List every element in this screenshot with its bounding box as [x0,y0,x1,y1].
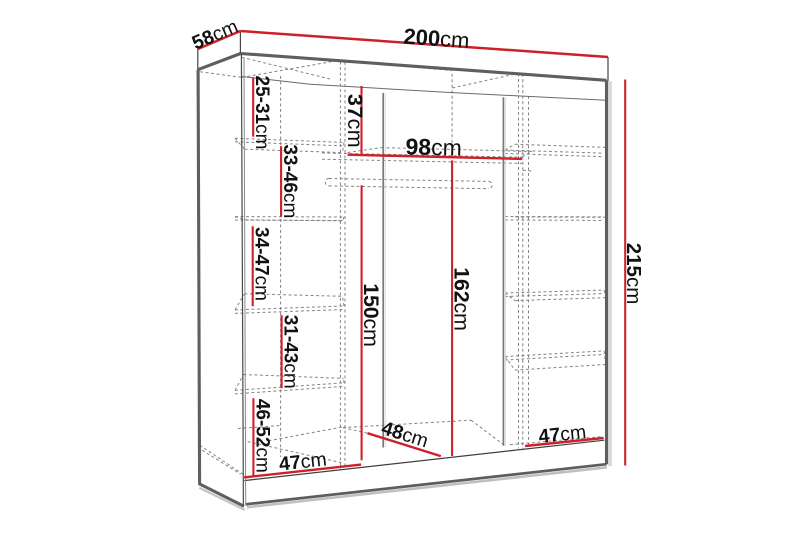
svg-text:58cm: 58cm [189,16,242,55]
svg-text:46-52cm: 46-52cm [252,399,273,473]
svg-text:25-31cm: 25-31cm [251,76,272,150]
svg-text:48cm: 48cm [379,417,431,452]
svg-text:150cm: 150cm [359,283,383,347]
svg-text:200cm: 200cm [403,24,471,54]
svg-text:37cm: 37cm [343,94,367,148]
svg-text:31-43cm: 31-43cm [280,315,301,389]
svg-text:47cm: 47cm [538,421,588,448]
svg-text:162cm: 162cm [449,267,473,331]
svg-text:215cm: 215cm [622,243,645,305]
svg-text:34-47cm: 34-47cm [251,227,272,301]
svg-text:33-46cm: 33-46cm [279,144,300,218]
svg-text:98cm: 98cm [405,133,462,160]
